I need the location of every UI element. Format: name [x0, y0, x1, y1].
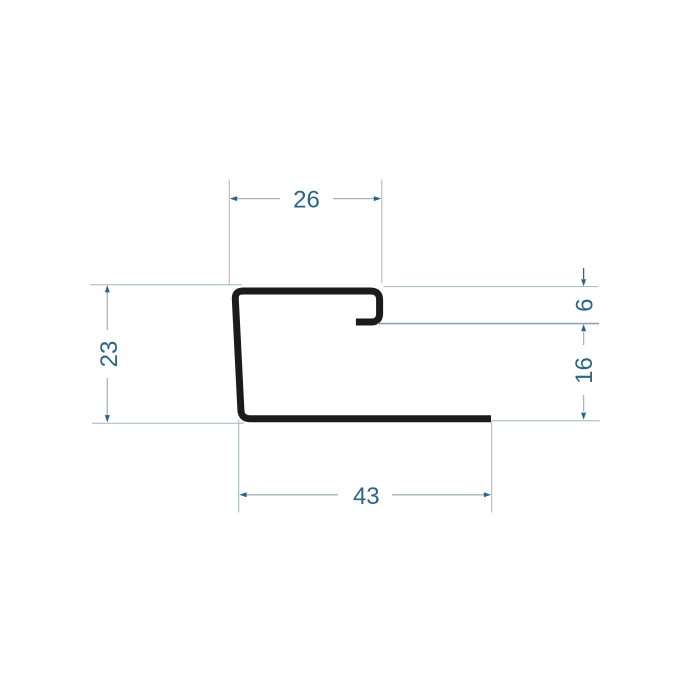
svg-text:43: 43 [353, 483, 380, 510]
svg-text:6: 6 [572, 299, 599, 312]
svg-text:23: 23 [96, 341, 123, 368]
svg-text:16: 16 [571, 357, 598, 384]
svg-text:26: 26 [293, 187, 320, 214]
